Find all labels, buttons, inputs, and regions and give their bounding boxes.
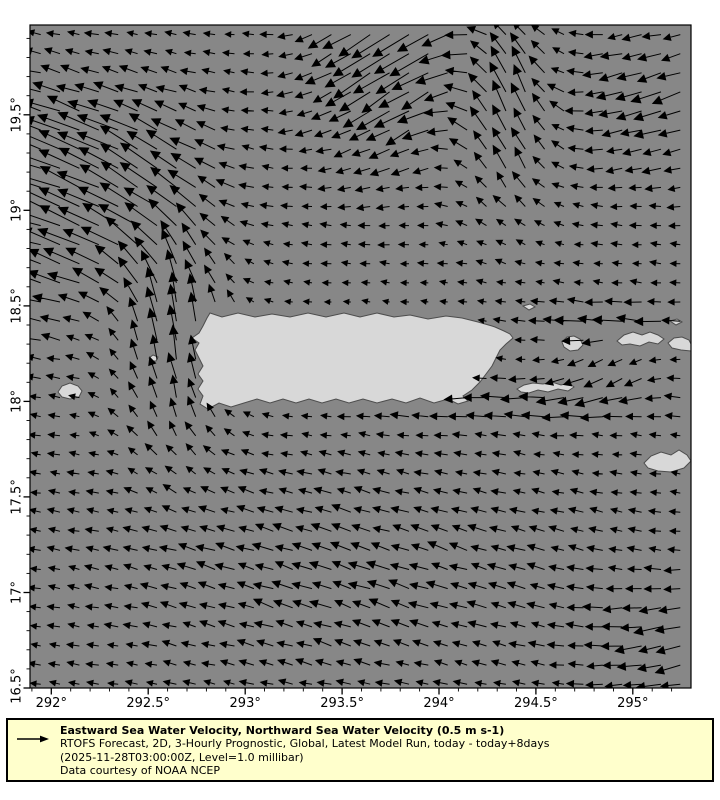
legend-text: Eastward Sea Water Velocity, Northward S… (60, 720, 550, 778)
velocity-quiver-map: 292°292.5°293°293.5°294°294.5°295°16.5°1… (0, 0, 720, 712)
legend-time-line: (2025-11-28T03:00:00Z, Level=1.0 milliba… (60, 751, 550, 764)
y-tick-label: 17.5° (10, 479, 25, 514)
legend: Eastward Sea Water Velocity, Northward S… (6, 718, 714, 782)
x-tick-label: 294° (423, 696, 454, 711)
y-tick-label: 16.5° (10, 668, 25, 703)
y-tick-label: 19° (10, 199, 25, 222)
reference-arrow-icon (8, 720, 60, 748)
x-axis: 292°292.5°293°293.5°294°294.5°295° (32, 688, 672, 711)
figure: 292°292.5°293°293.5°294°294.5°295°16.5°1… (0, 0, 720, 800)
y-tick-label: 17° (10, 581, 25, 604)
legend-model-line: RTOFS Forecast, 2D, 3-Hourly Prognostic,… (60, 737, 550, 750)
x-tick-label: 293° (230, 696, 261, 711)
x-tick-label: 295° (617, 696, 648, 711)
x-tick-label: 292° (36, 696, 67, 711)
y-tick-label: 19.5° (10, 97, 25, 132)
legend-title: Eastward Sea Water Velocity, Northward S… (60, 724, 550, 737)
y-tick-label: 18° (10, 390, 25, 413)
legend-credit-line: Data courtesy of NOAA NCEP (60, 764, 550, 777)
x-tick-label: 292.5° (126, 696, 170, 711)
island-puerto-rico (192, 313, 513, 409)
x-tick-label: 294.5° (514, 696, 558, 711)
x-tick-label: 293.5° (320, 696, 364, 711)
y-axis: 16.5°17°17.5°18°18.5°19°19.5° (10, 38, 31, 703)
y-tick-label: 18.5° (10, 288, 25, 323)
